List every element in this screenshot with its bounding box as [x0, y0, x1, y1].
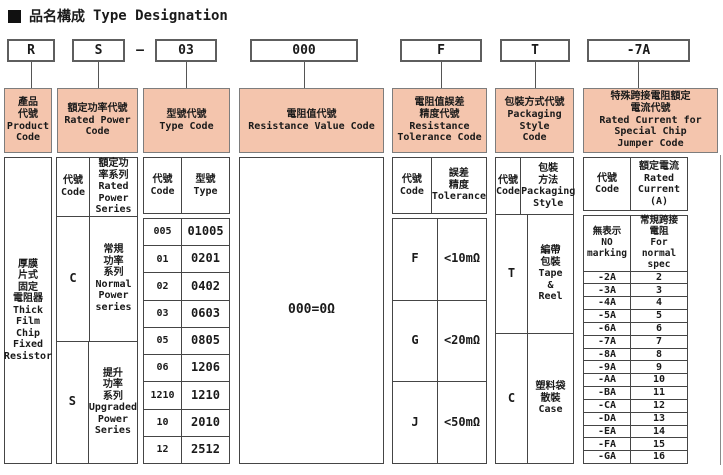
- type-code: 03: [144, 301, 182, 327]
- type-size: 0603: [182, 301, 229, 327]
- rated-power-table: 代號 Code 額定功 率系列 Rated Power Series C 常規 …: [56, 157, 138, 464]
- header-type-code: 型號代號 Type Code: [143, 88, 230, 153]
- packaging-style: 塑料袋 散裝 Case: [528, 334, 573, 463]
- jumper-code: -CA: [584, 400, 631, 412]
- table-row: -9A 9: [584, 360, 687, 373]
- product-description: 厚膜 片式 固定 電阻器 Thick Film Chip Fixed Resis…: [5, 158, 51, 463]
- type-size: 2512: [182, 437, 229, 463]
- table-row: 03 0603: [144, 300, 229, 327]
- code-separator-dash: —: [127, 39, 153, 62]
- jumper-code: -GA: [584, 451, 631, 463]
- table-row: C 常規 功率 系列 Normal Power series: [57, 216, 137, 341]
- table-row: -8A 8: [584, 348, 687, 361]
- packaging-table: 代號 Code 包裝 方法 Packaging Style T 編帶 包裝 Ta…: [495, 157, 574, 464]
- jumper-current: 13: [631, 413, 687, 425]
- connector-line: [535, 62, 536, 88]
- table-row: 代號 Code 誤差 精度 Tolerance: [393, 158, 486, 213]
- table-row: -5A 5: [584, 309, 687, 322]
- table-row: 02 0402: [144, 272, 229, 299]
- tolerance-code: F: [393, 219, 438, 300]
- table-row: 代號 Code 額定電流 Rated Current (A): [584, 158, 687, 210]
- code-box-product: R: [7, 39, 55, 62]
- header-resistance-value-code: 電阻值代號 Resistance Value Code: [239, 88, 384, 153]
- product-body-box: 厚膜 片式 固定 電阻器 Thick Film Chip Fixed Resis…: [4, 157, 52, 464]
- page-title-en: Type Designation: [93, 8, 228, 24]
- type-size: 1210: [182, 382, 229, 408]
- jumper-current: 11: [631, 387, 687, 399]
- jumper-code: -7A: [584, 336, 631, 348]
- table-row: -FA 15: [584, 437, 687, 450]
- table-row: 01 0201: [144, 245, 229, 272]
- jumper-subheader-box: 代號 Code 額定電流 Rated Current (A): [583, 157, 688, 211]
- type-code: 02: [144, 273, 182, 299]
- jumper-code: -FA: [584, 438, 631, 450]
- tolerance-value: <50mΩ: [438, 382, 486, 463]
- type-subheader-box: 代號 Code 型號 Type: [143, 157, 230, 214]
- table-row: 12 2512: [144, 436, 229, 463]
- tolerance-table: F <10mΩ G <20mΩ J <50mΩ: [392, 218, 487, 464]
- type-size: 0402: [182, 273, 229, 299]
- table-row: G <20mΩ: [393, 300, 486, 382]
- table-row: -EA 14: [584, 425, 687, 438]
- col-header-code: 代號 Code: [393, 158, 432, 213]
- code-box-resistance: 000: [250, 39, 358, 62]
- header-rated-power-code: 額定功率代號 Rated Power Code: [57, 88, 138, 153]
- code-box-tolerance: F: [400, 39, 482, 62]
- jumper-current: 4: [631, 297, 687, 309]
- code-box-type: 03: [155, 39, 217, 62]
- type-code: 05: [144, 328, 182, 354]
- packaging-style: 編帶 包裝 Tape & Reel: [528, 215, 573, 333]
- type-code: 01: [144, 246, 182, 272]
- jumper-current: 15: [631, 438, 687, 450]
- jumper-current: 16: [631, 451, 687, 463]
- connector-line: [98, 62, 99, 88]
- col-header-code: 代號 Code: [57, 158, 90, 216]
- table-row: -AA 10: [584, 373, 687, 386]
- type-size: 0201: [182, 246, 229, 272]
- code-box-packaging: T: [500, 39, 570, 62]
- connector-line: [441, 62, 442, 88]
- tolerance-code: J: [393, 382, 438, 463]
- type-code: 10: [144, 410, 182, 436]
- tolerance-subheader-box: 代號 Code 誤差 精度 Tolerance: [392, 157, 487, 214]
- table-row: 1210 1210: [144, 381, 229, 408]
- jumper-code: -AA: [584, 374, 631, 386]
- table-row: F <10mΩ: [393, 219, 486, 300]
- jumper-code: -9A: [584, 361, 631, 373]
- jumper-current: 5: [631, 310, 687, 322]
- col-header-series: 額定功 率系列 Rated Power Series: [90, 158, 137, 216]
- type-table: 005 01005 01 0201 02 0402 03 0603 05 080…: [143, 218, 230, 464]
- table-row: -2A 2: [584, 271, 687, 284]
- table-row: -DA 13: [584, 412, 687, 425]
- jumper-current: 3: [631, 284, 687, 296]
- connector-line: [186, 62, 187, 88]
- code-box-jumper: -7A: [587, 39, 690, 62]
- table-row: 10 2010: [144, 409, 229, 436]
- table-row: C 塑料袋 散裝 Case: [496, 333, 573, 463]
- table-row: J <50mΩ: [393, 381, 486, 463]
- table-row: T 編帶 包裝 Tape & Reel: [496, 214, 573, 333]
- power-code: S: [57, 342, 89, 464]
- resistance-value-box: 000=0Ω: [239, 157, 384, 464]
- jumper-current: 9: [631, 361, 687, 373]
- table-row: 代號 Code 額定功 率系列 Rated Power Series: [57, 158, 137, 216]
- connector-line: [638, 62, 639, 88]
- table-row: 代號 Code 包裝 方法 Packaging Style: [496, 158, 573, 214]
- jumper-code: -EA: [584, 426, 631, 438]
- col-header-current: 額定電流 Rated Current (A): [631, 158, 687, 210]
- square-bullet-icon: [8, 10, 21, 23]
- jumper-current: 8: [631, 349, 687, 361]
- table-row: -GA 16: [584, 450, 687, 463]
- table-row: -CA 12: [584, 399, 687, 412]
- tolerance-value: <10mΩ: [438, 219, 486, 300]
- type-code: 1210: [144, 382, 182, 408]
- table-row: 05 0805: [144, 327, 229, 354]
- table-row: 06 1206: [144, 354, 229, 381]
- tolerance-value: <20mΩ: [438, 301, 486, 382]
- jumper-current: 12: [631, 400, 687, 412]
- col-header-type: 型號 Type: [182, 158, 229, 213]
- jumper-code: -8A: [584, 349, 631, 361]
- jumper-code: 無表示 NO marking: [584, 216, 631, 271]
- table-row: 005 01005: [144, 219, 229, 245]
- packaging-code: T: [496, 215, 528, 333]
- page-title: 品名構成 Type Designation: [8, 6, 228, 26]
- table-row: 無表示 NO marking 常規跨接 電阻 For normal spec: [584, 216, 687, 271]
- type-code: 06: [144, 355, 182, 381]
- jumper-code: -DA: [584, 413, 631, 425]
- jumper-code: -6A: [584, 323, 631, 335]
- connector-line: [31, 62, 32, 88]
- tolerance-code: G: [393, 301, 438, 382]
- col-header-style: 包裝 方法 Packaging Style: [521, 158, 575, 214]
- power-code: C: [57, 217, 90, 341]
- jumper-current: 常規跨接 電阻 For normal spec: [631, 216, 687, 271]
- table-row: 代號 Code 型號 Type: [144, 158, 229, 213]
- table-row: S 提升 功率 系列 Upgraded Power Series: [57, 341, 137, 464]
- table-row: -7A 7: [584, 335, 687, 348]
- page-title-cjk: 品名構成: [29, 6, 85, 26]
- jumper-code: -4A: [584, 297, 631, 309]
- resistance-value: 000=0Ω: [240, 158, 383, 463]
- col-header-code: 代號 Code: [584, 158, 631, 210]
- connector-line: [304, 62, 305, 88]
- jumper-code: -BA: [584, 387, 631, 399]
- type-size: 1206: [182, 355, 229, 381]
- header-packaging-code: 包裝方式代號 Packaging Style Code: [495, 88, 574, 153]
- jumper-current: 14: [631, 426, 687, 438]
- col-header-code: 代號 Code: [144, 158, 182, 213]
- jumper-current: 7: [631, 336, 687, 348]
- jumper-current: 10: [631, 374, 687, 386]
- power-series: 提升 功率 系列 Upgraded Power Series: [89, 342, 137, 464]
- page-edge-line: [720, 155, 721, 465]
- power-series: 常規 功率 系列 Normal Power series: [90, 217, 137, 341]
- jumper-current: 6: [631, 323, 687, 335]
- jumper-code: -2A: [584, 272, 631, 284]
- type-code: 12: [144, 437, 182, 463]
- type-size: 01005: [182, 219, 229, 245]
- jumper-code: -5A: [584, 310, 631, 322]
- table-row: -BA 11: [584, 386, 687, 399]
- type-designation-figure: 品名構成 Type Designation R S — 03 000 F T -…: [0, 0, 723, 475]
- jumper-code: -3A: [584, 284, 631, 296]
- type-size: 0805: [182, 328, 229, 354]
- jumper-table: 無表示 NO marking 常規跨接 電阻 For normal spec -…: [583, 215, 688, 464]
- col-header-code: 代號 Code: [496, 158, 521, 214]
- jumper-current: 2: [631, 272, 687, 284]
- code-box-power: S: [72, 39, 125, 62]
- table-row: -4A 4: [584, 296, 687, 309]
- header-jumper-code: 特殊跨接電阻額定 電流代號 Rated Current for Special …: [583, 88, 718, 153]
- packaging-code: C: [496, 334, 528, 463]
- table-row: -3A 3: [584, 283, 687, 296]
- table-row: -6A 6: [584, 322, 687, 335]
- col-header-tolerance: 誤差 精度 Tolerance: [432, 158, 486, 213]
- header-product-code: 產品 代號 Product Code: [4, 88, 52, 153]
- type-code: 005: [144, 219, 182, 245]
- header-tolerance-code: 電阻值誤差 精度代號 Resistance Tolerance Code: [392, 88, 487, 153]
- type-size: 2010: [182, 410, 229, 436]
